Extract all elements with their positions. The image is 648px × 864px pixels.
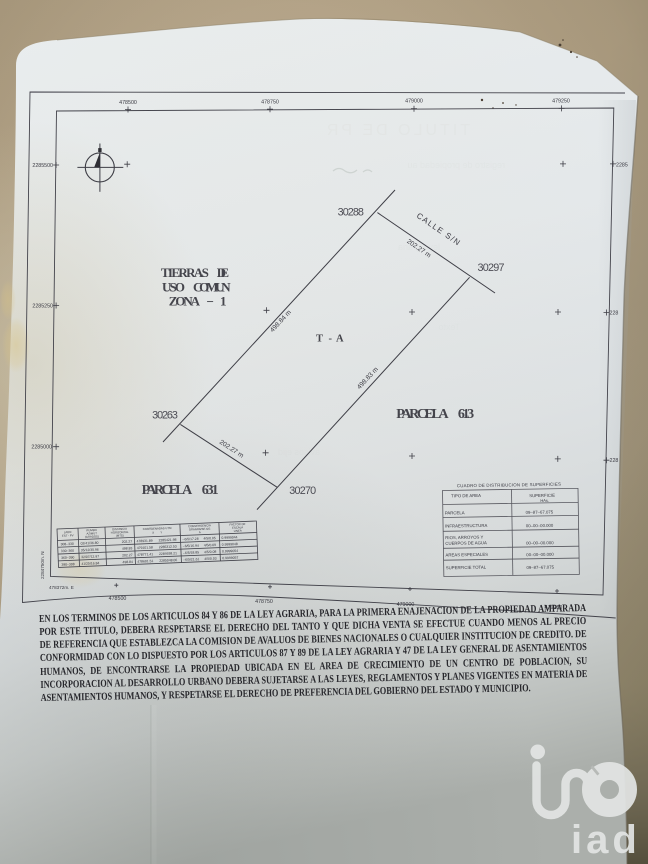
svg-text:iad: iad xyxy=(571,818,641,862)
